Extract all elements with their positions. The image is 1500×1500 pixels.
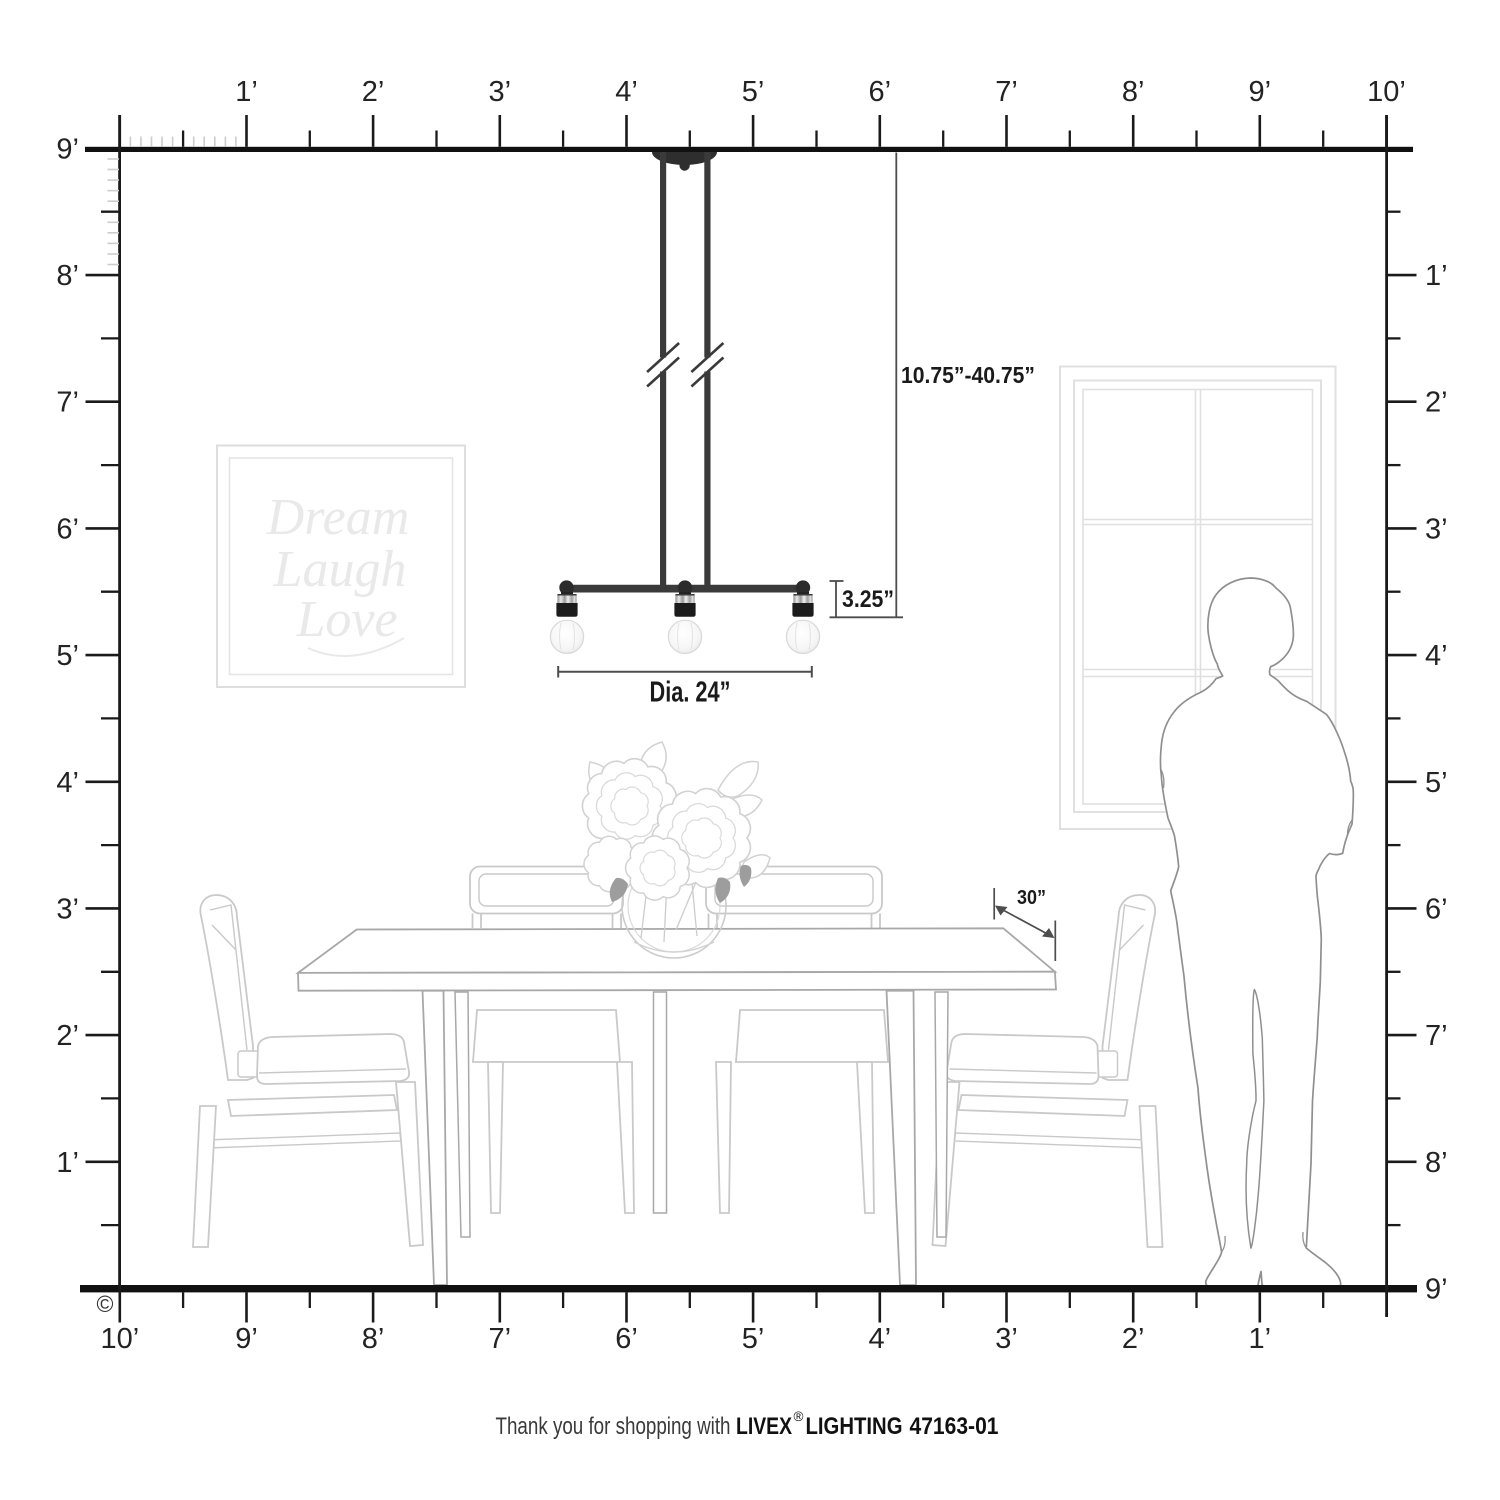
svg-text:8’: 8’	[1122, 76, 1145, 108]
svg-text:10.75”-40.75”: 10.75”-40.75”	[901, 362, 1035, 388]
svg-text:©: ©	[97, 1291, 114, 1317]
svg-text:1’: 1’	[56, 1147, 79, 1179]
svg-text:1’: 1’	[1249, 1323, 1272, 1355]
svg-text:3.25”: 3.25”	[842, 586, 894, 613]
svg-text:10’: 10’	[100, 1323, 139, 1355]
svg-text:6’: 6’	[56, 513, 79, 545]
svg-text:7’: 7’	[995, 76, 1018, 108]
svg-text:4’: 4’	[1425, 640, 1448, 672]
svg-text:5’: 5’	[742, 76, 765, 108]
svg-text:6’: 6’	[1425, 893, 1448, 925]
svg-text:5’: 5’	[1425, 767, 1448, 799]
svg-text:30”: 30”	[1017, 886, 1046, 909]
svg-text:9’: 9’	[1425, 1273, 1448, 1305]
svg-text:7’: 7’	[56, 387, 79, 419]
svg-text:9’: 9’	[235, 1323, 258, 1355]
svg-text:4’: 4’	[615, 76, 638, 108]
svg-text:2’: 2’	[1425, 387, 1448, 419]
svg-text:4’: 4’	[56, 767, 79, 799]
svg-text:Dream: Dream	[266, 489, 410, 546]
svg-text:3’: 3’	[56, 893, 79, 925]
svg-text:2’: 2’	[1122, 1323, 1145, 1355]
svg-text:7’: 7’	[1425, 1020, 1448, 1052]
svg-text:1’: 1’	[235, 76, 258, 108]
svg-text:LIGHTING: LIGHTING	[806, 1413, 903, 1440]
svg-text:10’: 10’	[1367, 76, 1406, 108]
svg-text:3’: 3’	[995, 1323, 1018, 1355]
svg-text:9’: 9’	[56, 133, 79, 165]
svg-text:Thank you for shopping with: Thank you for shopping with	[496, 1413, 731, 1440]
svg-text:47163-01: 47163-01	[910, 1413, 999, 1440]
svg-text:9’: 9’	[1249, 76, 1272, 108]
svg-text:Dia. 24”: Dia. 24”	[650, 677, 731, 709]
svg-text:3’: 3’	[489, 76, 512, 108]
svg-text:2’: 2’	[56, 1020, 79, 1052]
svg-text:7’: 7’	[489, 1323, 512, 1355]
svg-text:Love: Love	[295, 591, 397, 648]
svg-text:Laugh: Laugh	[273, 541, 407, 598]
svg-text:6’: 6’	[869, 76, 892, 108]
svg-text:6’: 6’	[615, 1323, 638, 1355]
svg-text:1’: 1’	[1425, 260, 1448, 292]
svg-text:®: ®	[794, 1409, 804, 1424]
svg-text:8’: 8’	[56, 260, 79, 292]
svg-text:2’: 2’	[362, 76, 385, 108]
svg-text:LIVEX: LIVEX	[736, 1413, 793, 1440]
svg-text:5’: 5’	[742, 1323, 765, 1355]
svg-text:5’: 5’	[56, 640, 79, 672]
svg-text:8’: 8’	[362, 1323, 385, 1355]
svg-text:8’: 8’	[1425, 1147, 1448, 1179]
svg-text:4’: 4’	[869, 1323, 892, 1355]
svg-text:3’: 3’	[1425, 513, 1448, 545]
